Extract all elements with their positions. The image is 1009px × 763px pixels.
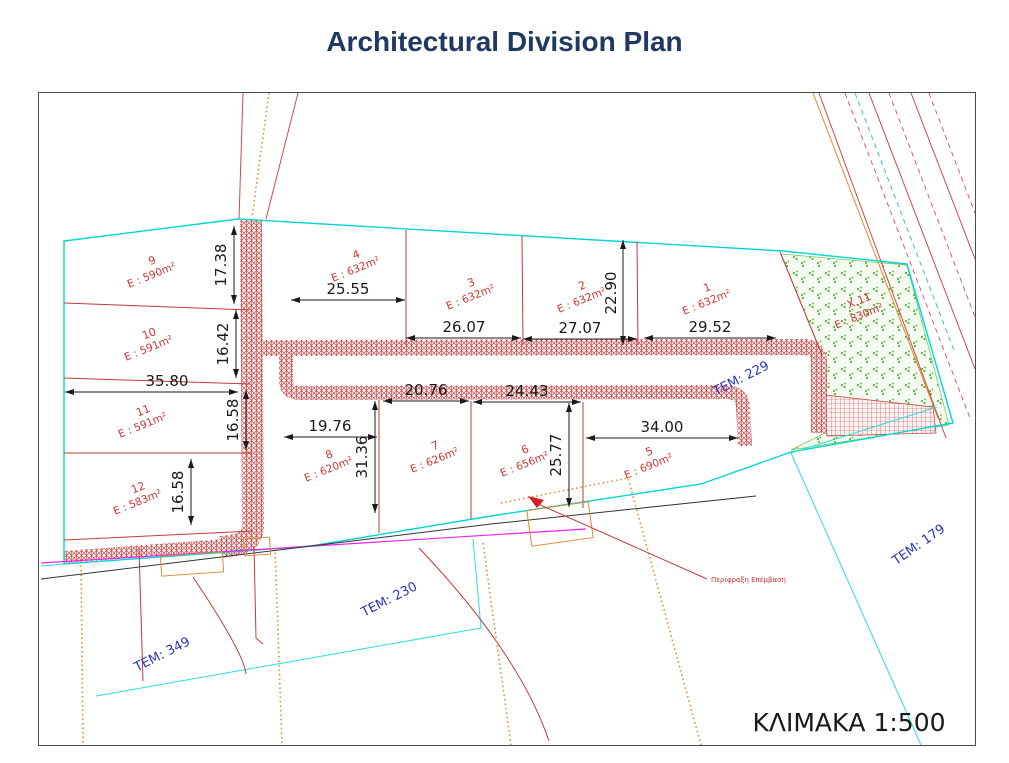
bottom-survey-lines (41, 478, 756, 745)
plot-label-1: 1E : 632m² (675, 274, 732, 317)
plot-label-5: 5E : 690m² (617, 438, 674, 481)
dimension-label: 34.00 (641, 418, 684, 436)
dimension-label: 16.58 (169, 471, 187, 514)
tem-label-349: TEM: 349 (131, 634, 193, 675)
dimension-label: 24.43 (506, 382, 549, 400)
division-plan-drawing: 25.55 26.07 27.07 29.52 22.90 17.38 16.4… (39, 93, 975, 745)
page-title: Architectural Division Plan (0, 26, 1009, 58)
plot-label-12: 12E : 583m² (106, 474, 163, 517)
dimension-label: 16.42 (214, 323, 232, 366)
plot-label-10: 10E : 591m² (117, 320, 174, 363)
dimension-label: 19.76 (309, 417, 352, 435)
plot-label-2: 2E : 632m² (550, 272, 607, 315)
fence-note: Περίφραξη Επέμβαση (711, 576, 786, 584)
plot-label-4: 4E : 632m² (324, 241, 381, 284)
scale-label: ΚΛΙΜΑΚΑ 1:500 (752, 708, 945, 737)
plot-label-7: 7E : 626m² (403, 432, 460, 475)
plot-label-11: 11E : 591m² (111, 397, 168, 440)
tem-label-179: TEM: 179 (889, 522, 948, 570)
plot-label-9: 9E : 590m² (120, 247, 177, 290)
plot-label-8: 8E : 620m² (297, 441, 354, 484)
drawing-frame: 25.55 26.07 27.07 29.52 22.90 17.38 16.4… (38, 92, 976, 746)
north-road-lines (239, 93, 298, 219)
dimension-label: 20.76 (405, 381, 448, 399)
page: { "title": "Architectural Division Plan"… (0, 0, 1009, 763)
dimension-label: 35.80 (146, 372, 189, 390)
plot-label-3: 3E : 632m² (439, 269, 496, 312)
dimension-label: 27.07 (559, 319, 602, 337)
tem-label-230: TEM: 230 (358, 579, 420, 620)
dimension-label: 16.58 (224, 399, 242, 442)
plot-label-6: 6E : 656m² (493, 436, 550, 479)
leader-arrow-icon (528, 496, 544, 508)
dimension-label: 26.07 (443, 318, 486, 336)
dimension-label: 31.36 (353, 436, 371, 479)
dimension-label: 25.77 (547, 434, 565, 477)
dimension-label: 29.52 (689, 318, 732, 336)
neighbour-boundaries (41, 407, 937, 745)
dimension-label: 17.38 (212, 244, 230, 287)
fence-note-leader (528, 496, 707, 579)
